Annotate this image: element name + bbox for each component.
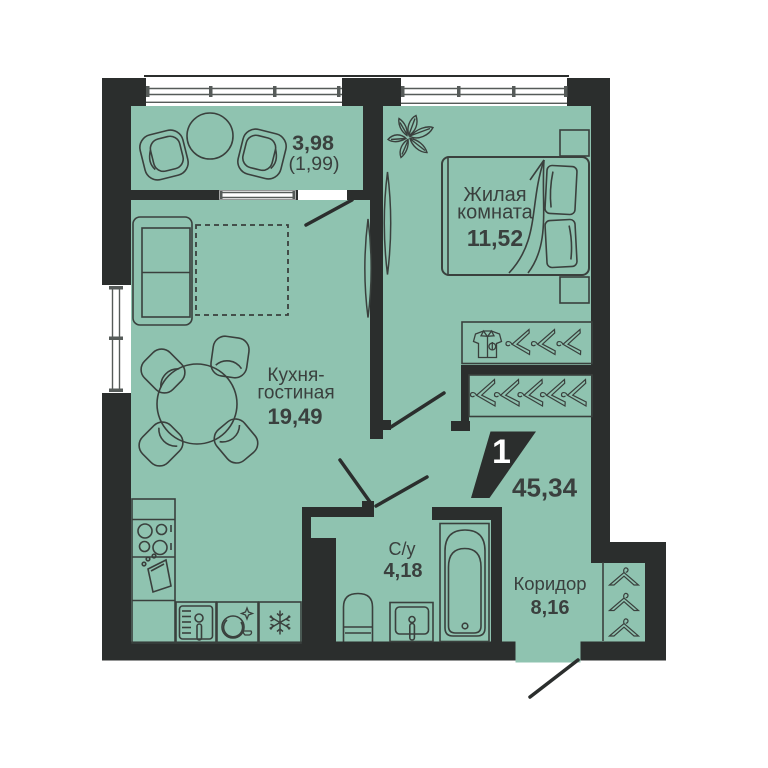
svg-text:8,16: 8,16 xyxy=(531,597,570,619)
svg-text:1: 1 xyxy=(492,433,511,471)
svg-text:3,98: 3,98 xyxy=(292,131,334,155)
svg-text:комната: комната xyxy=(457,202,534,224)
svg-text:19,49: 19,49 xyxy=(267,404,322,429)
svg-text:(1,99): (1,99) xyxy=(289,153,340,175)
svg-text:45,34: 45,34 xyxy=(512,473,578,503)
svg-text:11,52: 11,52 xyxy=(467,225,523,251)
svg-text:гостиная: гостиная xyxy=(257,383,334,404)
svg-text:С/у: С/у xyxy=(389,539,416,559)
svg-text:Коридор: Коридор xyxy=(513,573,586,594)
svg-text:4,18: 4,18 xyxy=(384,560,423,582)
